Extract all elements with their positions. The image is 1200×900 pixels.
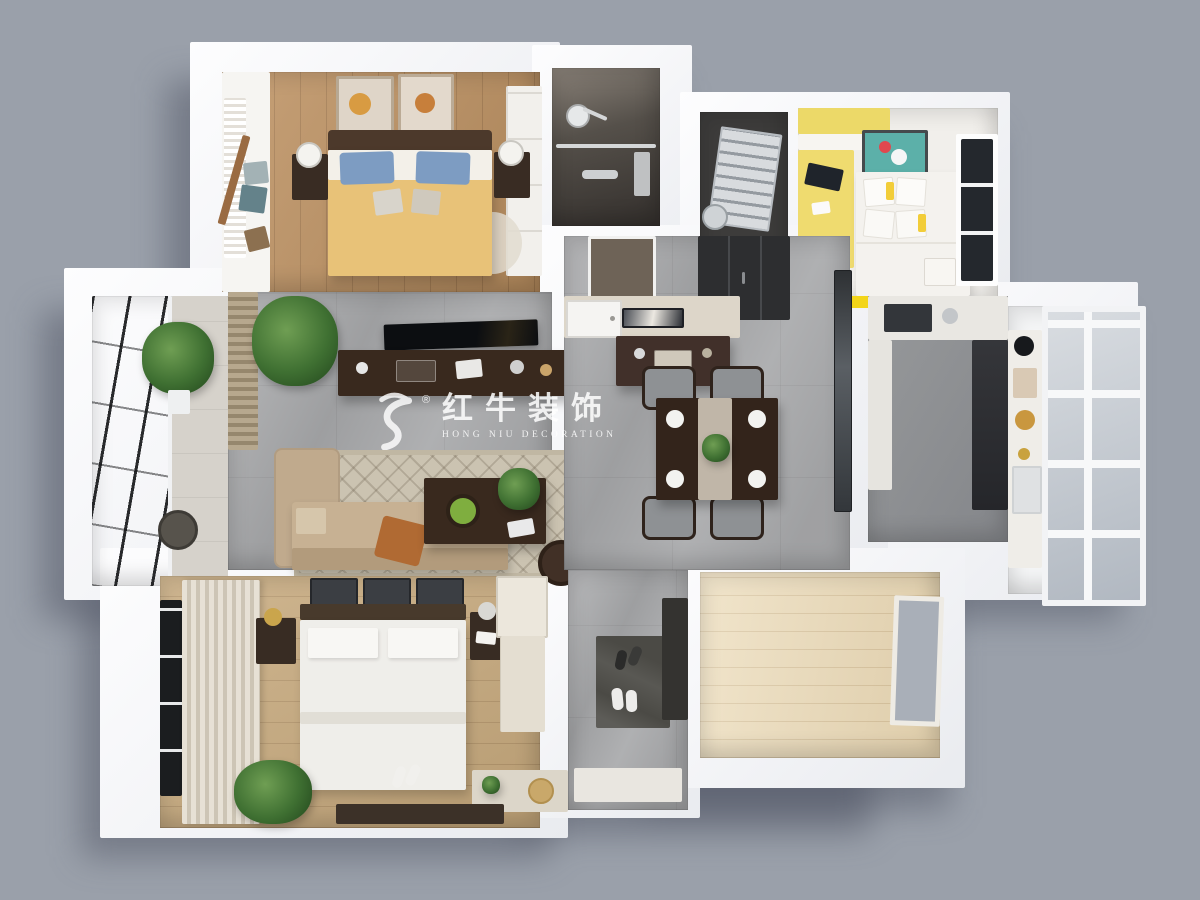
table-centerpiece <box>702 434 730 462</box>
bedroom-door <box>588 236 656 300</box>
kitchen-counter-side <box>868 340 892 490</box>
art-flower-white <box>891 149 907 165</box>
art-motif <box>349 93 371 115</box>
room-bedroom-second <box>222 72 540 292</box>
cooking-pot <box>942 308 958 324</box>
room-balcony <box>92 296 228 586</box>
room-kitchen <box>868 296 1008 542</box>
bamboo-blind <box>228 292 258 450</box>
dinner-plate <box>666 470 684 488</box>
table-lamp <box>296 142 322 168</box>
kids-nightstand <box>924 258 956 286</box>
wall-art <box>363 578 411 606</box>
bay-counter <box>1008 330 1042 568</box>
room-master-bedroom <box>160 576 540 828</box>
art-motif <box>415 93 435 113</box>
watermark-brand-en: HONG NIU DECORATION <box>442 430 616 440</box>
sink <box>1012 466 1042 514</box>
pillow <box>863 209 896 240</box>
straw-hat <box>528 778 554 804</box>
shoe <box>614 649 628 671</box>
decor-vase <box>702 348 712 358</box>
shower-glass-panel <box>556 144 656 148</box>
seat-pillow-teal <box>238 184 267 213</box>
rice-cooker <box>1013 368 1037 398</box>
cooktop <box>884 304 932 332</box>
wall-art <box>398 74 454 136</box>
dining-chair <box>710 496 764 540</box>
white-door <box>566 300 622 338</box>
room-bathroom <box>552 68 660 226</box>
pillow-gray <box>372 188 403 216</box>
seat-pillow-brown <box>244 226 271 253</box>
entry-threshold <box>574 768 682 802</box>
seat-pillow-gray <box>243 161 269 185</box>
decor-item <box>356 362 368 374</box>
master-bed <box>300 620 466 790</box>
double-bed <box>328 150 492 276</box>
pillow <box>895 177 927 207</box>
pillow-accent-yellow <box>886 182 894 200</box>
gold-faucet <box>1018 448 1030 460</box>
wardrobe <box>500 636 545 732</box>
pillow <box>388 628 458 658</box>
closet-handle <box>742 272 745 284</box>
headboard <box>300 604 466 620</box>
tv-cabinet <box>338 350 576 396</box>
fruit-bowl <box>446 494 480 528</box>
pillow-blue <box>339 151 394 185</box>
duvet-fold <box>300 712 466 724</box>
pillow-blue <box>415 151 470 185</box>
registered-mark: ® <box>422 394 430 406</box>
window <box>956 134 998 286</box>
table-lamp <box>478 602 496 620</box>
decor-item <box>510 360 524 374</box>
shoe-cabinet <box>662 598 688 720</box>
dinner-plate <box>748 410 766 428</box>
bath-shelf <box>634 152 650 196</box>
magazine <box>507 518 535 538</box>
floorplan-3d-render: ® 红牛装饰 HONG NIU DECORATION <box>0 0 1200 900</box>
tall-cabinet-fridge <box>972 340 1008 510</box>
gold-table-lamp <box>264 608 282 626</box>
bay-window <box>1042 306 1146 606</box>
wall-art <box>310 578 358 606</box>
tv-console <box>336 804 504 824</box>
master-door <box>496 576 548 638</box>
pillow-gray <box>411 189 441 216</box>
art-flower-red <box>879 141 891 153</box>
bull-logo: ® <box>370 392 428 450</box>
planter-pot <box>168 390 190 414</box>
towel-bar <box>582 170 618 179</box>
floor-plant <box>234 760 312 824</box>
pillow <box>308 628 378 658</box>
window-glass <box>961 139 993 281</box>
notebook <box>811 201 830 215</box>
kettle <box>1014 336 1034 356</box>
kitchen-counter <box>868 296 1008 340</box>
corner-plant <box>252 296 338 386</box>
rattan-basket <box>158 510 198 550</box>
window <box>160 600 182 796</box>
slipper <box>611 687 624 710</box>
brand-watermark: ® 红牛装饰 HONG NIU DECORATION <box>370 392 616 450</box>
shoe <box>627 645 644 667</box>
coffee-table <box>424 478 546 544</box>
dresser-plant <box>482 776 500 794</box>
open-book <box>475 631 496 645</box>
sofa-pillow <box>296 508 326 534</box>
table-lamp <box>498 140 524 166</box>
entry-doormat <box>596 636 670 728</box>
dining-chair <box>642 496 696 540</box>
decor-book <box>455 359 483 380</box>
pillow-accent-yellow <box>918 214 926 232</box>
duvet-fold <box>856 242 970 244</box>
wall-mirror <box>622 308 684 328</box>
teapot <box>634 348 645 359</box>
dinner-plate <box>748 470 766 488</box>
headboard <box>328 130 492 150</box>
washer-fan <box>702 204 728 230</box>
watermark-brand-cn: 红牛装饰 <box>442 392 616 426</box>
decor-item <box>540 364 552 376</box>
fruit-plate <box>1015 410 1035 430</box>
slipper <box>626 690 638 712</box>
room-entry-corridor <box>568 570 688 810</box>
dining-table <box>656 398 778 500</box>
table-plant <box>498 468 540 510</box>
window <box>890 595 945 727</box>
room-window-bay <box>1008 306 1134 594</box>
dinner-plate <box>666 410 684 428</box>
tv-screen <box>384 319 539 350</box>
door-knob <box>610 316 615 321</box>
potted-plant <box>142 322 214 394</box>
room-empty <box>700 572 940 758</box>
kitchen-glass-partition <box>834 270 852 512</box>
wall-art <box>416 578 464 606</box>
window-seat <box>222 72 270 292</box>
decor-tray <box>396 360 436 382</box>
